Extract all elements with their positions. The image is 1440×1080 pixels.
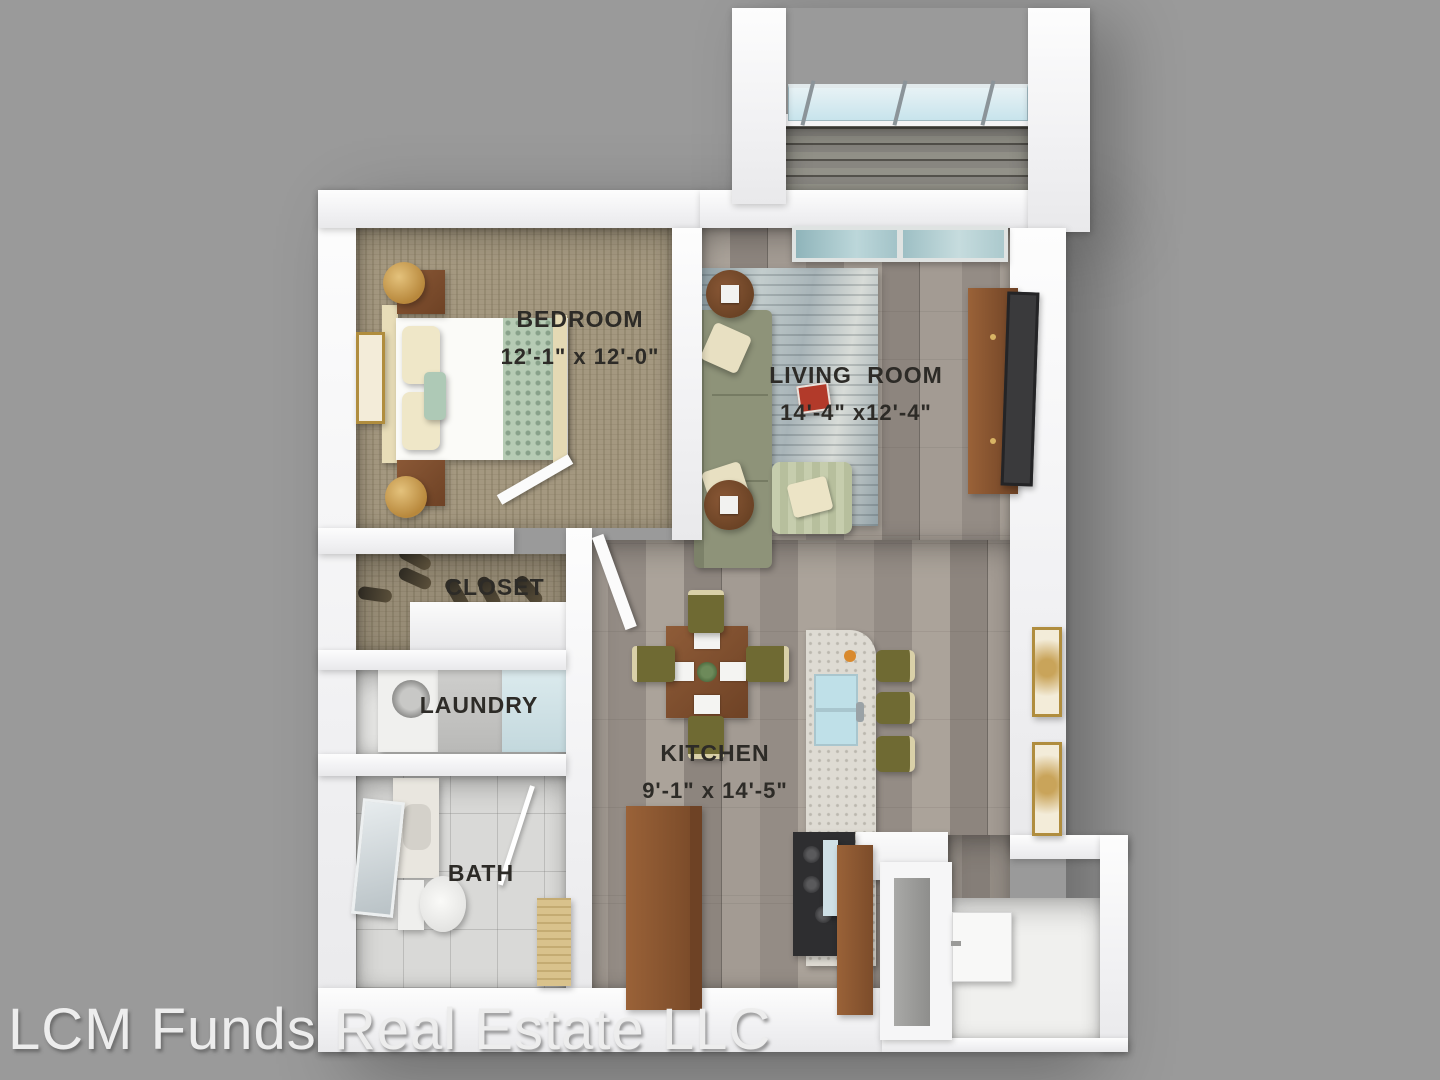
front-door: [952, 912, 1012, 982]
glass-panel: [796, 230, 897, 258]
bath-label: BATH: [436, 860, 526, 887]
living-room-dimensions: 14'-4" x12'-4": [758, 400, 954, 426]
dining-chair: [688, 590, 724, 633]
bedroom-wall-art: [356, 332, 385, 424]
bar-stool: [876, 650, 915, 682]
dining-table: [666, 626, 748, 718]
closet-label: CLOSET: [428, 574, 562, 601]
side-table: [704, 480, 754, 530]
shower-bath-mat: [537, 898, 571, 986]
wall-laundry-bath: [318, 754, 566, 776]
accent-pillow: [424, 372, 446, 420]
kitchen-label: KITCHEN: [642, 740, 788, 767]
wall-entry-bottom: [882, 1038, 1128, 1052]
sliding-glass-door: [792, 226, 1008, 262]
placemat: [694, 695, 720, 714]
laundry-label: LAUNDRY: [412, 692, 546, 719]
dining-chair: [632, 646, 675, 682]
bar-stool: [876, 736, 915, 772]
wall-balcony-left: [732, 8, 786, 204]
living-room-label: LIVING ROOM: [758, 362, 954, 389]
glass-panel: [903, 230, 1004, 258]
candle: [720, 496, 738, 514]
stove-burner: [803, 876, 820, 893]
framed-picture: [1032, 742, 1062, 836]
kitchen-counter-left: [626, 806, 702, 1010]
framed-picture: [1032, 627, 1062, 717]
wall-bedroom-living-divider: [672, 228, 702, 540]
watermark-text: LCM Funds Real Estate LLC: [8, 996, 771, 1063]
placemat: [720, 662, 746, 681]
dining-chair: [746, 646, 789, 682]
bar-stool: [876, 692, 915, 724]
wall-closet-laundry: [318, 650, 566, 670]
centerpiece-plant: [697, 662, 717, 682]
vanity-sink: [403, 804, 431, 850]
kitchen-dimensions: 9'-1" x 14'-5": [632, 778, 798, 804]
kitchen-cabinet-right: [837, 845, 873, 1015]
wall-top-bedroom: [318, 190, 702, 228]
sofa-cushion-seam: [712, 394, 768, 396]
table-lamp: [383, 262, 425, 304]
wall-left: [318, 190, 356, 1052]
table-lamp: [385, 476, 427, 518]
bed-footboard: [553, 315, 567, 463]
console-knob: [990, 438, 996, 444]
wall-entry-right: [1100, 835, 1128, 1052]
wall-bedroom-bottom: [318, 528, 514, 554]
entry-closet: [880, 862, 952, 1040]
island-sink: [814, 674, 858, 710]
floor-plan-canvas: BEDROOM 12'-1" x 12'-0" LIVING ROOM 14'-…: [0, 0, 1440, 1080]
decor-bowl: [844, 650, 856, 662]
console-knob: [990, 334, 996, 340]
closet-shelf: [410, 602, 566, 650]
tv: [1001, 292, 1040, 487]
stove-burner: [803, 846, 820, 863]
entry-closet-interior: [894, 878, 930, 1026]
side-table: [706, 270, 754, 318]
balcony-deck: [786, 125, 1028, 193]
wall-balcony-right: [1028, 8, 1090, 232]
bedroom-dimensions: 12'-1" x 12'-0": [470, 344, 690, 370]
armchair: [772, 462, 852, 534]
bed-runner-blanket: [503, 318, 553, 460]
armchair-pillow: [786, 476, 833, 519]
bedroom-label: BEDROOM: [470, 306, 690, 333]
faucet: [856, 702, 864, 722]
candle: [721, 285, 739, 303]
door-handle: [951, 941, 961, 946]
dishwasher-panel: [823, 840, 838, 916]
island-sink: [814, 710, 858, 746]
